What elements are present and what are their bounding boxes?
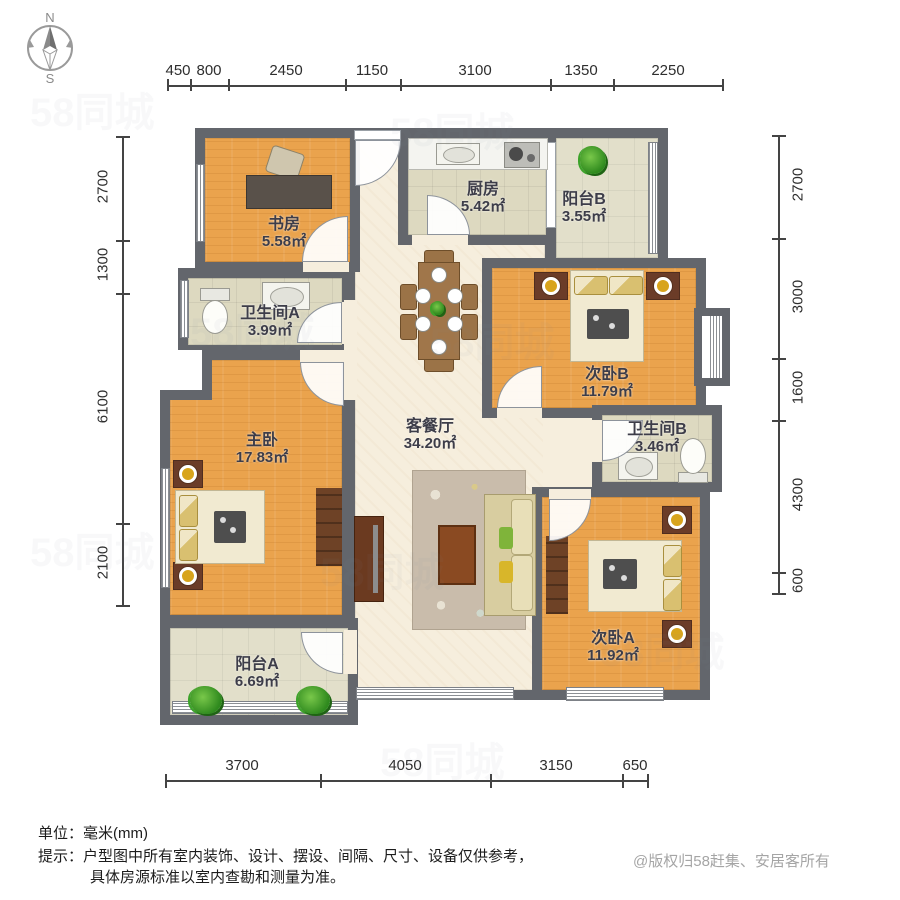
nightstand [662,620,692,648]
dim-value: 800 [179,62,239,79]
bed-master [175,490,265,564]
burner-icon [527,154,535,162]
pillow-yellow [499,561,513,583]
plate [447,288,463,304]
unit-label: 单位： [38,825,83,842]
lamp-icon [668,625,686,643]
bath-b-sink-icon [618,452,658,480]
pillow [663,545,682,577]
room-area: 5.42㎡ [461,198,505,215]
pillow [179,495,198,527]
room-area: 6.69㎡ [235,673,279,690]
tick [550,79,552,91]
room-name: 阳台A [235,656,279,673]
room-name: 书房 [262,216,306,233]
tick [613,79,615,91]
centerpiece-plant-icon [432,301,444,315]
room-name: 次卧B [581,366,633,383]
room-area: 11.79㎡ [581,383,633,400]
label-balcony-a: 阳台A 6.69㎡ [235,656,279,690]
nightstand [646,272,680,300]
plate [415,288,431,304]
label-bath-a: 卫生间A 3.99㎡ [240,305,300,339]
dim-value: 4050 [375,757,435,774]
watermark: 58同城 [30,80,155,138]
label-study: 书房 5.58㎡ [262,216,306,250]
dim-value: 3100 [445,62,505,79]
coffee-table [438,525,476,585]
tick [772,593,786,595]
label-living: 客餐厅 34.20㎡ [404,418,457,452]
sink-basin [443,147,474,163]
dim-value: 2250 [638,62,698,79]
compass-north-label: N [45,10,54,25]
tip-label: 提示： [38,848,83,865]
label-bedroom-b: 次卧B 11.79㎡ [581,366,633,400]
dining-chair [461,314,478,340]
room-name: 次卧A [587,630,639,647]
balcony-a-door-opening [344,630,357,674]
decor-dot [609,565,615,571]
tick [116,523,130,525]
bed-bedroom-a [588,540,682,612]
study-door-opening [303,262,349,272]
bath-a-door-opening [342,302,354,344]
bedroom-a-door-opening [549,489,591,499]
dim-value: 3000 [790,267,807,327]
room-area: 11.92㎡ [587,647,639,664]
tick [116,605,130,607]
lamp-icon [179,567,197,585]
tip-note-line2: 具体房源标准以室内查勘和测量为准。 [90,866,345,887]
kitchen-stove-icon [504,142,540,168]
bay-window-glass [710,316,722,378]
label-balcony-b: 阳台B 3.55㎡ [562,191,606,225]
room-name: 卫生间B [627,421,687,438]
pillow-green [499,527,513,549]
bay-window-frame [694,308,730,386]
kitchen-sink-icon [436,143,480,165]
dim-value: 2700 [95,157,112,217]
label-bedroom-a: 次卧A 11.92㎡ [587,630,639,664]
tick [190,79,192,91]
plate [415,316,431,332]
dim-value: 6100 [95,377,112,437]
tv-stand [354,516,384,602]
label-bath-b: 卫生间B 3.46㎡ [627,421,687,455]
wardrobe-bedroom-a [546,536,568,614]
balcony-b-window [648,142,658,254]
tick [116,136,130,138]
decor-dot [220,517,226,523]
room-name: 主卧 [236,432,289,449]
blanket [214,511,246,543]
tv-icon [373,525,378,593]
tick [345,79,347,91]
dim-value: 650 [605,757,665,774]
dim-value: 2450 [256,62,316,79]
blanket [587,309,629,339]
tick [647,774,649,788]
plant-icon [298,686,330,714]
room-name: 卫生间A [240,305,300,322]
bedroom-b-door-opening [497,408,542,418]
dim-line [122,136,124,605]
living-window [356,687,514,700]
decor-dot [621,575,627,581]
study-desk [246,175,332,209]
unit-note: 单位：毫米(mm) [38,822,148,843]
dim-value: 3150 [526,757,586,774]
tip-note-line1: 提示：户型图中所有室内装饰、设计、摆设、间隔、尺寸、设备仅供参考， [38,845,533,866]
sink-basin [625,457,654,477]
dim-value: 1300 [95,235,112,295]
tick [490,774,492,788]
dim-value: 2700 [790,155,807,215]
tick [772,572,786,574]
decor-dot [230,527,236,533]
lamp-icon [179,465,197,483]
floorplan-page: { "compass": {"north": "N", "south": "S"… [0,0,900,900]
tick [772,358,786,360]
kitchen-door-opening [412,235,468,245]
bedroom-a-window [566,687,664,701]
tick [772,238,786,240]
dim-value: 1350 [551,62,611,79]
pillow [663,579,682,611]
tick [165,774,167,788]
label-kitchen: 厨房 5.42㎡ [461,181,505,215]
room-area: 3.55㎡ [562,208,606,225]
sofa-cushion [511,499,533,555]
burner-icon [509,147,523,161]
lamp-icon [668,511,686,529]
tick [722,79,724,91]
tick [228,79,230,91]
room-name: 阳台B [562,191,606,208]
tick [116,240,130,242]
sofa-cushion [511,555,533,611]
bath-a-window [180,280,189,338]
tick [400,79,402,91]
dining-chair [400,314,417,340]
pillow [179,529,198,561]
label-master: 主卧 17.83㎡ [236,432,289,466]
room-name: 厨房 [461,181,505,198]
plate [431,267,447,283]
tick [772,135,786,137]
lamp-icon [542,277,560,295]
tip-text: 户型图中所有室内装饰、设计、摆设、间隔、尺寸、设备仅供参考， [83,848,533,865]
nightstand [662,506,692,534]
copyright-note: @版权归58赶集、安居客所有 [633,850,830,871]
dim-value: 2100 [95,533,112,593]
dim-value: 3700 [212,757,272,774]
room-area: 34.20㎡ [404,435,457,452]
sofa [484,494,536,616]
decor-dot [609,323,615,329]
dim-value: 1150 [342,62,402,79]
tip-text: 具体房源标准以室内查勘和测量为准。 [90,869,345,886]
plate [447,316,463,332]
exterior-notch [160,350,212,400]
wardrobe-master [316,488,342,566]
dim-line [778,135,780,593]
tick [320,774,322,788]
dim-value: 1600 [790,358,807,418]
corridor-floor [543,418,592,487]
room-area: 3.99㎡ [240,322,300,339]
tick [167,79,169,91]
room-name: 客餐厅 [404,418,457,435]
plate [431,339,447,355]
dim-value: 4300 [790,465,807,525]
compass-south-label: S [46,71,55,86]
bath-b-door-opening [592,420,602,462]
plant-icon [580,146,606,174]
pillow [574,276,608,295]
tick [622,774,624,788]
pillow [609,276,643,295]
master-window [161,468,170,588]
plant-icon [190,686,222,714]
bed-bedroom-b [570,270,644,362]
master-door-opening [300,350,346,362]
nightstand [534,272,568,300]
lamp-icon [654,277,672,295]
room-area: 17.83㎡ [236,449,289,466]
dim-line [165,780,648,782]
dining-chair [461,284,478,310]
blanket [603,559,637,589]
entrance-opening [354,130,401,140]
decor-dot [593,315,599,321]
dim-line [167,85,723,87]
nightstand [173,562,203,590]
toilet-bowl [202,300,228,334]
tick [772,420,786,422]
room-area: 5.58㎡ [262,233,306,250]
room-area: 3.46㎡ [627,438,687,455]
watermark: 58同城 [30,520,155,578]
tick [116,293,130,295]
nightstand [173,460,203,488]
dim-value: 600 [790,551,807,611]
study-window [196,164,205,242]
unit-value: 毫米(mm) [83,825,148,842]
compass-icon: N S [20,8,84,86]
